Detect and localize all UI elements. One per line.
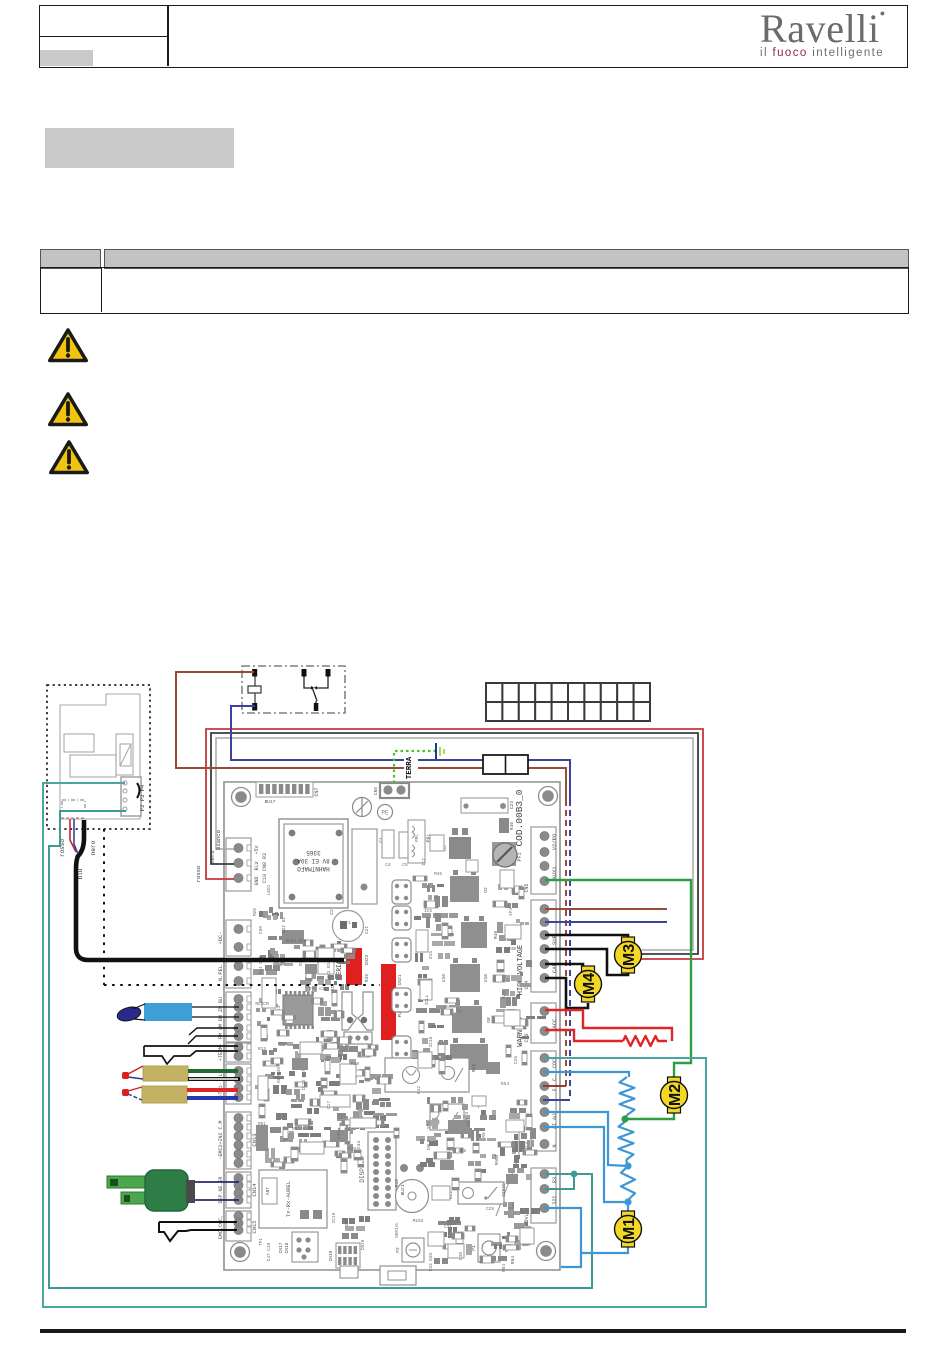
svg-text:C44: C44 (356, 1141, 362, 1149)
svg-text:R04: R04 (502, 1264, 507, 1272)
svg-text:P2: P2 (395, 1247, 401, 1253)
svg-text:PF1: PF1 (517, 852, 523, 861)
svg-text:+DC-: +DC- (217, 931, 224, 944)
svg-text:SERIAL: SERIAL (395, 1222, 400, 1238)
svg-text:-EMC2+IN2 C.M: -EMC2+IN2 C.M (218, 1120, 224, 1159)
svg-text:CN6: CN6 (373, 787, 379, 795)
svg-text:D14: D14 (467, 1118, 472, 1126)
svg-text:R82C49: R82C49 (277, 1067, 282, 1083)
svg-text:PML: PML (415, 834, 420, 842)
svg-text:M1: M1 (621, 1218, 638, 1240)
svg-text:C39: C39 (348, 1147, 356, 1152)
svg-text:CN22: CN22 (364, 954, 370, 965)
svg-text:CN10: CN10 (284, 1242, 290, 1253)
svg-text:C29: C29 (486, 1207, 494, 1212)
svg-text:R4R: R4R (502, 991, 507, 999)
svg-text:CHR: CHR (259, 926, 264, 934)
svg-text:PE: PE (381, 810, 389, 817)
svg-text:M4: M4 (581, 973, 598, 995)
svg-text:BLU: BLU (254, 861, 260, 870)
svg-text:CN21: CN21 (397, 974, 403, 985)
svg-text:R51: R51 (258, 1122, 266, 1127)
svg-text:R54: R54 (501, 1082, 509, 1087)
svg-text:C30: C30 (459, 1252, 464, 1260)
svg-text:RM AM BM ZN BU: RM AM BM ZN BU (218, 997, 224, 1039)
svg-text:N: N (552, 1144, 558, 1147)
svg-text:rosso: rosso (195, 866, 202, 883)
svg-text:M2: M2 (667, 1084, 684, 1106)
svg-text:C31: C31 (444, 1225, 452, 1230)
svg-text:CN18: CN18 (328, 1250, 334, 1261)
svg-text:M103: M103 (413, 1219, 424, 1224)
svg-text:BU17: BU17 (265, 799, 276, 805)
svg-text:CN14: CN14 (251, 1183, 258, 1197)
svg-text:C53 E03: C53 E03 (429, 1252, 434, 1271)
svg-text:+5V: +5V (254, 845, 260, 854)
svg-text:IC13 M77: IC13 M77 (302, 1069, 307, 1090)
svg-text:SIC: SIC (552, 1195, 558, 1204)
svg-text:C2: C2 (329, 909, 335, 915)
svg-text:T1: T1 (345, 921, 351, 926)
svg-text:TERRA: TERRA (406, 756, 414, 779)
svg-text:+TC1- FL1: +TC1- FL1 (218, 1070, 224, 1097)
svg-text:CNL9: CNL9 (427, 1139, 432, 1150)
svg-text:C4: C4 (385, 862, 391, 868)
svg-text:nero: nero (209, 850, 216, 863)
svg-text:R10: R10 (351, 1062, 359, 1067)
svg-text:R2I 0Z: R2I 0Z (282, 917, 287, 933)
svg-text:AUX1: AUX1 (551, 866, 558, 880)
svg-text:D01: D01 (345, 1218, 350, 1226)
svg-text:RL2CM: RL2CM (255, 1002, 269, 1007)
svg-text:Z15: Z15 (429, 951, 434, 959)
svg-text:D8: D8 (486, 1017, 492, 1023)
svg-text:R94: R94 (510, 1256, 516, 1264)
svg-text:DIDIO: DIDIO (502, 1183, 507, 1197)
svg-text:bianco: bianco (215, 830, 222, 850)
svg-text:IC10: IC10 (429, 1036, 434, 1047)
svg-text:CN19: CN19 (361, 1239, 366, 1250)
svg-text:R13: R13 (258, 1047, 266, 1052)
svg-text:CN15: CN15 (251, 1220, 258, 1233)
svg-text:nero: nero (90, 840, 97, 855)
svg-text:M3: M3 (621, 944, 638, 966)
svg-text:EMC,COC,: EMC,COC, (218, 1215, 224, 1239)
svg-text:CN7: CN7 (314, 787, 320, 796)
svg-text:C2I: C2I (365, 926, 370, 934)
svg-text:D2: D2 (483, 887, 489, 893)
svg-text:R5: R5 (482, 1132, 487, 1138)
svg-text:R79 C37: R79 C37 (309, 987, 328, 992)
svg-text:HIGH VOLTAGE: HIGH VOLTAGE (517, 945, 525, 995)
svg-text:Tx-Rx-AUREL: Tx-Rx-AUREL (285, 1181, 292, 1217)
svg-text:C25: C25 (514, 1056, 519, 1064)
svg-text:C45: C45 (337, 1131, 342, 1139)
svg-text:CN17: CN17 (278, 1242, 284, 1253)
svg-text:1P4: 1P4 (509, 908, 514, 916)
svg-text:U10: U10 (441, 974, 447, 982)
svg-text:C47 C48: C47 C48 (267, 1242, 272, 1261)
svg-text:8V EI 30A: 8V EI 30A (297, 857, 330, 864)
svg-text:TP1: TP1 (259, 1238, 264, 1246)
svg-text:COD.00B3_0: COD.00B3_0 (514, 789, 525, 846)
svg-text:V2/PO: V2/PO (551, 833, 558, 850)
svg-text:N.PEL: N.PEL (217, 965, 224, 982)
svg-text:IC7: IC7 (422, 858, 427, 866)
svg-text:BUZ1: BUZ1 (400, 1184, 406, 1195)
svg-text:IC19: IC19 (332, 1212, 337, 1223)
svg-text:GND: GND (254, 876, 260, 885)
svg-text:M45: M45 (434, 872, 442, 877)
svg-text:R36: R36 (364, 974, 370, 982)
svg-text:IC6: IC6 (424, 909, 432, 914)
svg-text:HAHNTMAFO: HAHNTMAFO (297, 865, 330, 872)
svg-text:IC8: IC8 (458, 1149, 466, 1154)
svg-text:DL8Z R13: DL8Z R13 (285, 939, 306, 944)
svg-text:M2E: M2E (253, 908, 258, 916)
svg-text:C.: C. (552, 1075, 558, 1081)
svg-text:R3: R3 (552, 1177, 558, 1183)
svg-text:U10: U10 (483, 974, 489, 982)
svg-text:M8bR85: M8bR85 (292, 1127, 308, 1132)
svg-text:ICLL: ICLL (425, 994, 430, 1005)
svg-text:C5: C5 (402, 862, 408, 868)
svg-text:3365: 3365 (306, 849, 321, 856)
svg-text:M5N0: M5N0 (495, 1154, 500, 1165)
svg-text:F: F (552, 1088, 558, 1091)
svg-text:RL1: RL1 (471, 1064, 477, 1072)
svg-text:R10: R10 (394, 1179, 400, 1187)
svg-text:C17: C17 (327, 1101, 332, 1109)
svg-text:CN5: CN5 (524, 883, 530, 892)
svg-text:ACC.: ACC. (551, 1015, 558, 1028)
svg-text:LED1: LED1 (267, 884, 272, 895)
svg-text:R42: R42 (417, 1086, 422, 1094)
svg-text:XTL: XTL (427, 1121, 432, 1129)
svg-text:R4B: R4B (508, 947, 516, 952)
svg-text:ANT: ANT (265, 1187, 271, 1195)
svg-text:C10 CN8 R3: C10 CN8 R3 (262, 853, 268, 883)
svg-text:DVL: DVL (524, 1213, 530, 1222)
